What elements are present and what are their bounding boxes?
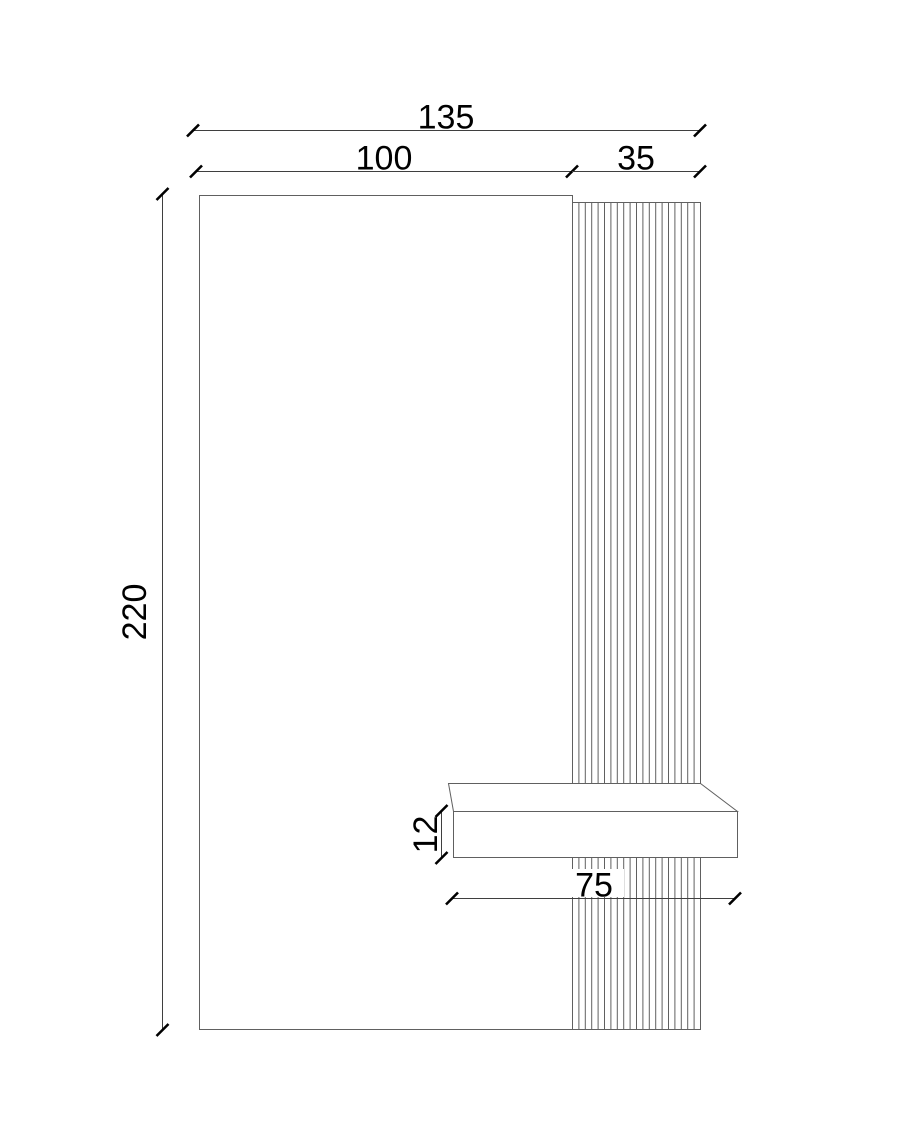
dimension-label-panel-width: 100 bbox=[356, 140, 413, 178]
dimension-total-width: 135 bbox=[187, 99, 706, 137]
dimension-panel-width: 100 bbox=[190, 140, 578, 178]
dimension-label-shelf-length: 75 bbox=[575, 867, 613, 905]
shelf bbox=[449, 784, 738, 858]
drawing-page: 220 135 100 35 bbox=[0, 0, 900, 1125]
main-panel-outline bbox=[200, 196, 573, 1030]
dimension-slat-width: 35 bbox=[572, 140, 706, 178]
dimension-label-shelf-thickness: 12 bbox=[407, 816, 445, 854]
dimension-total-height: 220 bbox=[116, 188, 169, 1036]
shelf-top-face bbox=[449, 784, 738, 812]
technical-drawing-canvas: 220 135 100 35 bbox=[0, 0, 900, 1125]
shelf-front-face bbox=[454, 812, 738, 858]
dimension-label-total-height: 220 bbox=[116, 584, 154, 641]
dimension-label-total-width: 135 bbox=[418, 99, 475, 137]
dimension-label-slat-width: 35 bbox=[617, 140, 655, 178]
